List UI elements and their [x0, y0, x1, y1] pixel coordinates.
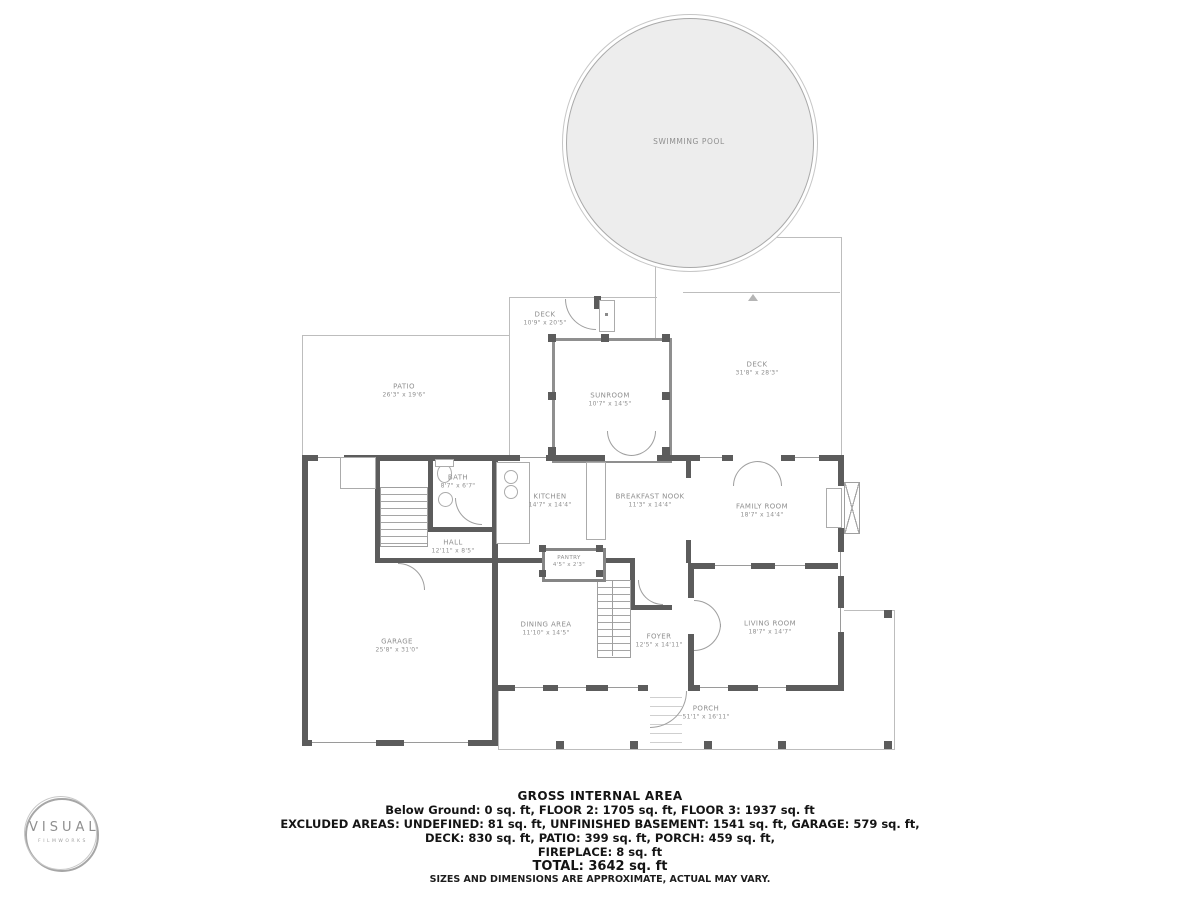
area-summary-disclaimer: SIZES AND DIMENSIONS ARE APPROXIMATE, AC…	[0, 874, 1200, 885]
kitchen-island	[586, 462, 606, 540]
room-label-foyer: FOYER 12'5" x 14'11"	[635, 633, 682, 650]
sunroom-post	[662, 392, 670, 400]
wall-stairwell-bottom	[630, 605, 672, 610]
room-dims: 11'3" x 14'4"	[615, 502, 684, 510]
room-dims: 11'10" x 14'5"	[521, 630, 572, 638]
wall-garage-left	[302, 455, 308, 746]
room-dims: 18'7" x 14'7"	[744, 629, 796, 637]
fireplace-firebox	[826, 488, 842, 528]
room-dims: 18'7" x 14'4"	[736, 512, 788, 520]
window	[838, 608, 844, 632]
area-summary-excluded-2: DECK: 830 sq. ft, PATIO: 399 sq. ft, POR…	[0, 831, 1200, 845]
living-door-arc	[694, 624, 721, 651]
deck-french-door-arc	[757, 461, 782, 486]
window	[795, 455, 819, 461]
room-name: DECK	[736, 361, 779, 370]
porch-post	[778, 741, 786, 749]
room-name: DECK	[524, 311, 567, 320]
window	[838, 552, 844, 576]
hall-closet	[340, 457, 376, 489]
area-summary-fireplace: FIREPLACE: 8 sq. ft	[0, 845, 1200, 859]
porch-outline-left	[498, 691, 499, 750]
room-dims: 4'5" x 2'3"	[553, 562, 585, 569]
room-dims: 31'8" x 28'3"	[736, 370, 779, 378]
room-label-kitchen: KITCHEN 14'7" x 14'4"	[529, 493, 572, 510]
room-label-sunroom: SUNROOM 10'7" x 14'5"	[589, 392, 632, 409]
pantry-post	[539, 570, 546, 577]
room-dims: 12'5" x 14'11"	[635, 642, 682, 650]
outdoor-fixture	[599, 300, 615, 332]
window	[758, 685, 786, 691]
hall-garage-door-arc	[398, 563, 425, 590]
wall-bath-left	[428, 455, 433, 532]
window	[520, 455, 546, 461]
foyer-stairs-rail	[612, 580, 613, 656]
garage-door	[312, 740, 376, 746]
sunroom-post	[601, 334, 609, 342]
wall-kitchen-dining	[498, 558, 544, 563]
room-dims: 10'7" x 14'5"	[589, 401, 632, 409]
wall-family-living	[688, 563, 844, 569]
porch-post	[630, 741, 638, 749]
porch-post	[556, 741, 564, 749]
room-name: PORCH	[682, 705, 729, 714]
room-dims: 10'9" x 20'5"	[524, 320, 567, 328]
porch-post	[704, 741, 712, 749]
porch-post	[884, 741, 892, 749]
cased-opening	[775, 563, 805, 569]
room-label-dining-area: DINING AREA 11'10" x 14'5"	[521, 621, 572, 638]
wall-bath-bottom	[428, 527, 498, 532]
living-door-arc	[694, 600, 721, 627]
wall-hall-bottom	[375, 558, 498, 563]
room-dims: 26'3" x 19'6"	[383, 392, 426, 400]
room-name: HALL	[432, 539, 475, 548]
room-dims: 12'11" x 8'5"	[432, 548, 475, 556]
porch-post	[884, 610, 892, 618]
deck-right-inner-line	[683, 292, 840, 293]
room-name: KITCHEN	[529, 493, 572, 502]
foyer-stairs	[597, 580, 631, 658]
room-label-swimming-pool: SWIMMING POOL	[653, 137, 725, 147]
stairwell-door-arc	[638, 580, 663, 605]
room-name: FAMILY ROOM	[736, 503, 788, 512]
room-dims: 8'7" x 6'7"	[441, 483, 476, 491]
sunroom-post	[662, 334, 670, 342]
room-name: LIVING ROOM	[744, 620, 796, 629]
hall-stairs	[380, 487, 428, 547]
deck-french-door-arc	[733, 461, 758, 486]
room-label-living-room: LIVING ROOM 18'7" x 14'7"	[744, 620, 796, 637]
area-summary-total: TOTAL: 3642 sq. ft	[0, 859, 1200, 874]
room-label-family-room: FAMILY ROOM 18'7" x 14'4"	[736, 503, 788, 520]
room-label-porch: PORCH 51'1" x 16'11"	[682, 705, 729, 722]
visual-filmworks-logo: VISUAL FILMWORKS	[25, 798, 99, 872]
room-label-garage: GARAGE 25'8" x 31'0"	[376, 638, 419, 655]
room-label-bath: BATH 8'7" x 6'7"	[441, 474, 476, 491]
kitchen-sink	[504, 485, 518, 499]
deck-step-arrow-icon	[748, 294, 758, 301]
area-summary: GROSS INTERNAL AREA Below Ground: 0 sq. …	[0, 789, 1200, 885]
window	[558, 685, 586, 691]
sunroom-post	[548, 334, 556, 342]
floor-plan-page: SWIMMING POOL DECK 10'9" x 20'5" DECK 31…	[0, 0, 1200, 900]
room-name: PATIO	[383, 383, 426, 392]
area-summary-excluded: EXCLUDED AREAS: UNDEFINED: 81 sq. ft, UN…	[0, 817, 1200, 831]
room-name: FOYER	[635, 633, 682, 642]
kitchen-sink	[504, 470, 518, 484]
room-dims: 51'1" x 16'11"	[682, 714, 729, 722]
opening	[686, 478, 691, 540]
room-dims: 14'7" x 14'4"	[529, 502, 572, 510]
room-label-deck-right: DECK 31'8" x 28'3"	[736, 361, 779, 378]
outdoor-fixture-dot	[605, 313, 608, 316]
logo-subtext: FILMWORKS	[25, 839, 99, 844]
room-name: SWIMMING POOL	[653, 137, 725, 147]
room-name: BATH	[441, 474, 476, 483]
room-name: DINING AREA	[521, 621, 572, 630]
room-name: BREAKFAST NOOK	[615, 493, 684, 502]
logo-text: VISUAL	[25, 820, 99, 835]
window	[515, 685, 543, 691]
room-label-breakfast-nook: BREAKFAST NOOK 11'3" x 14'4"	[615, 493, 684, 510]
deck-right-outline	[655, 237, 842, 456]
sunroom-post	[662, 447, 670, 455]
bath-door-arc	[455, 498, 482, 525]
porch-outline-bottom	[498, 749, 895, 750]
room-name: PANTRY	[553, 555, 585, 562]
porch-outline-right	[894, 610, 895, 750]
area-summary-title: GROSS INTERNAL AREA	[0, 789, 1200, 803]
room-name: SUNROOM	[589, 392, 632, 401]
pantry-post	[596, 545, 603, 552]
room-label-deck-top: DECK 10'9" x 20'5"	[524, 311, 567, 328]
area-summary-floors: Below Ground: 0 sq. ft, FLOOR 2: 1705 sq…	[0, 803, 1200, 817]
room-dims: 25'8" x 31'0"	[376, 647, 419, 655]
room-label-patio: PATIO 26'3" x 19'6"	[383, 383, 426, 400]
sunroom-post	[548, 447, 556, 455]
room-name: GARAGE	[376, 638, 419, 647]
sunroom-post	[548, 392, 556, 400]
window	[700, 685, 728, 691]
cased-opening	[715, 563, 751, 569]
pantry-post	[539, 545, 546, 552]
window	[608, 685, 638, 691]
room-label-pantry: PANTRY 4'5" x 2'3"	[553, 555, 585, 569]
fireplace-chimney	[844, 482, 860, 534]
toilet-tank	[435, 459, 454, 467]
bath-sink	[438, 492, 453, 507]
window	[700, 455, 722, 461]
garage-door	[404, 740, 468, 746]
room-label-hall: HALL 12'11" x 8'5"	[432, 539, 475, 556]
pantry-post	[596, 570, 603, 577]
